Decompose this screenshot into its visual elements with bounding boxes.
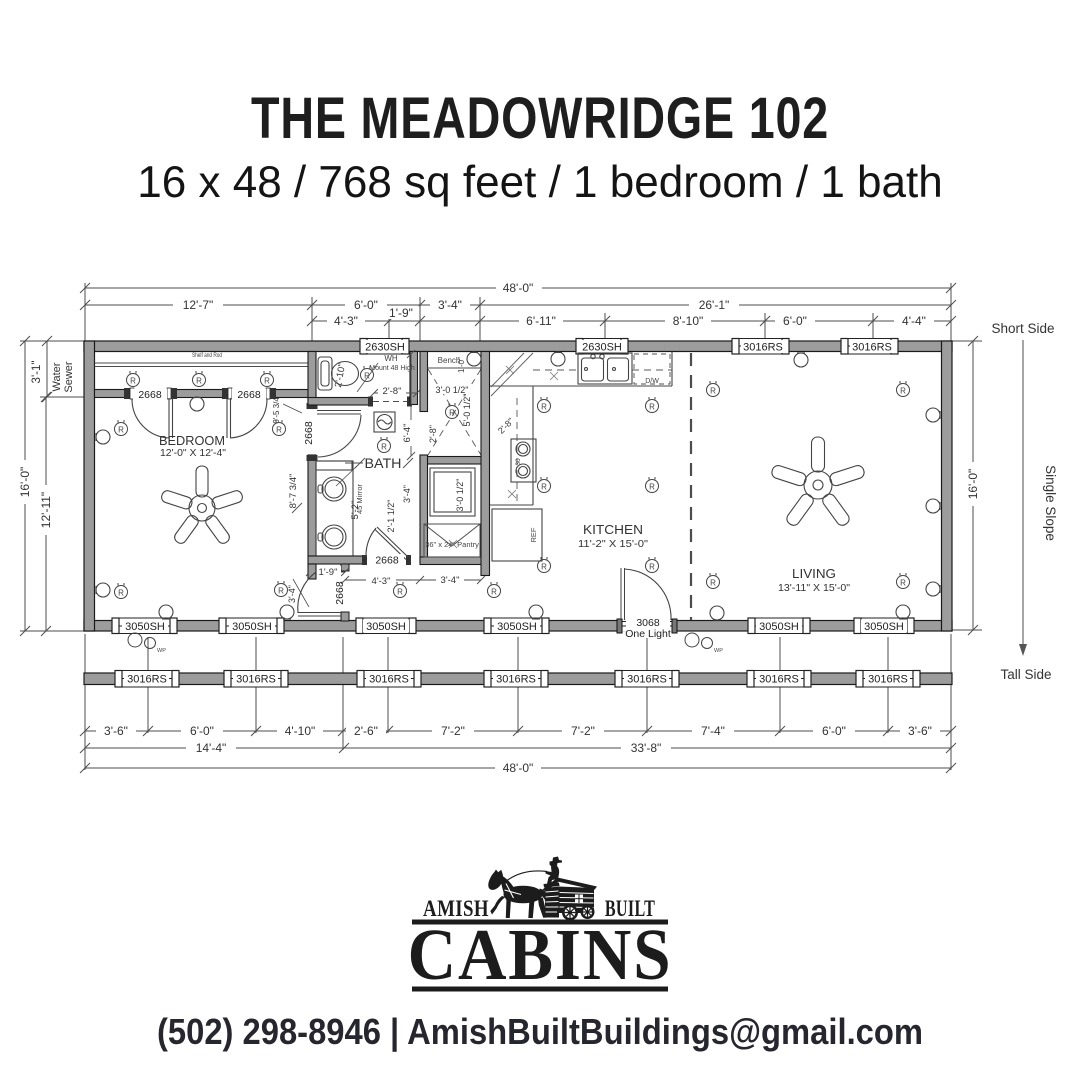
svg-text:REF: REF [529, 527, 538, 542]
svg-text:6'-0": 6'-0" [354, 298, 378, 312]
svg-text:R: R [900, 387, 906, 396]
svg-text:One Light: One Light [625, 628, 671, 640]
svg-text:D/W: D/W [645, 378, 659, 385]
svg-text:BEDROOM: BEDROOM [159, 433, 225, 448]
svg-text:R: R [649, 403, 655, 412]
svg-text:3016RS: 3016RS [852, 342, 892, 354]
svg-text:Water: Water [51, 362, 63, 391]
svg-text:0'-5 3/4": 0'-5 3/4" [272, 394, 281, 423]
svg-text:2'-6": 2'-6" [354, 724, 378, 738]
svg-text:3016RS: 3016RS [743, 342, 783, 354]
svg-text:7'-2": 7'-2" [571, 724, 595, 738]
svg-text:8'-7 3/4": 8'-7 3/4" [288, 474, 299, 509]
svg-text:BATH: BATH [365, 456, 402, 471]
svg-text:WP: WP [714, 648, 723, 654]
svg-text:4'-4": 4'-4" [902, 314, 926, 328]
svg-text:1'-0": 1'-0" [457, 357, 466, 373]
svg-text:30: 30 [515, 458, 522, 466]
svg-text:7'-4": 7'-4" [701, 724, 725, 738]
svg-text:R: R [381, 443, 387, 452]
svg-text:R: R [130, 377, 136, 386]
svg-text:THE MEADOWRIDGE 102: THE MEADOWRIDGE 102 [251, 86, 829, 151]
svg-text:2668: 2668 [303, 421, 315, 445]
svg-text:WH: WH [384, 354, 398, 363]
svg-text:14'-4": 14'-4" [196, 741, 227, 755]
svg-text:3016RS: 3016RS [369, 674, 409, 686]
svg-text:3016RS: 3016RS [496, 674, 536, 686]
svg-text:2'-8": 2'-8" [428, 425, 438, 443]
svg-text:3'-1": 3'-1" [31, 361, 43, 384]
svg-text:3'-4": 3'-4" [402, 485, 412, 503]
svg-text:26'-1": 26'-1" [699, 298, 730, 312]
svg-text:6'-0": 6'-0" [783, 314, 807, 328]
svg-text:KITCHEN: KITCHEN [583, 522, 643, 537]
svg-text:6'-4": 6'-4" [402, 424, 413, 443]
svg-text:3016RS: 3016RS [627, 674, 667, 686]
svg-text:3'-4": 3'-4" [438, 298, 462, 312]
svg-text:R: R [278, 587, 284, 596]
svg-text:R: R [449, 409, 455, 418]
svg-text:(502) 298-8946 | AmishBuiltBui: (502) 298-8946 | AmishBuiltBuildings@gma… [157, 1013, 923, 1053]
svg-text:R: R [541, 563, 547, 572]
svg-text:3050SH: 3050SH [366, 621, 406, 633]
svg-text:2668: 2668 [334, 581, 346, 605]
svg-text:3016RS: 3016RS [127, 674, 167, 686]
svg-text:13'-11" X 15'-0": 13'-11" X 15'-0" [778, 582, 850, 594]
svg-text:R: R [649, 563, 655, 572]
svg-text:3050SH: 3050SH [759, 621, 799, 633]
svg-text:2668: 2668 [375, 555, 399, 567]
svg-text:3'-0 1/2": 3'-0 1/2" [455, 479, 465, 512]
svg-text:R: R [649, 483, 655, 492]
svg-text:R: R [264, 377, 270, 386]
svg-text:2'-8": 2'-8" [383, 386, 402, 397]
svg-text:6'-0": 6'-0" [190, 724, 214, 738]
svg-text:3'-0 1/2": 3'-0 1/2" [436, 385, 469, 395]
svg-text:3016RS: 3016RS [868, 674, 908, 686]
svg-text:5'-2": 5'-2" [350, 501, 361, 520]
svg-text:1'-9": 1'-9" [319, 567, 338, 578]
svg-text:3'-4": 3'-4" [441, 575, 460, 586]
svg-text:Sewer: Sewer [63, 361, 75, 393]
svg-text:R: R [710, 387, 716, 396]
svg-text:3016RS: 3016RS [759, 674, 799, 686]
svg-text:5'-0 1/2": 5'-0 1/2" [462, 394, 472, 427]
svg-text:12'-0" X 12'-4": 12'-0" X 12'-4" [160, 447, 226, 459]
svg-text:R: R [364, 372, 370, 381]
svg-text:R: R [196, 377, 202, 386]
svg-text:1'-9": 1'-9" [389, 306, 413, 320]
svg-text:12'-11": 12'-11" [39, 492, 53, 528]
svg-text:R: R [397, 588, 403, 597]
svg-text:3050SH: 3050SH [232, 621, 272, 633]
svg-text:R: R [541, 403, 547, 412]
svg-text:16'-0": 16'-0" [18, 467, 32, 498]
svg-text:3'-6": 3'-6" [104, 724, 128, 738]
svg-text:3050SH: 3050SH [497, 621, 537, 633]
svg-text:3016RS: 3016RS [236, 674, 276, 686]
svg-text:2668: 2668 [237, 389, 261, 401]
svg-text:4'-3": 4'-3" [334, 314, 358, 328]
svg-text:3050SH: 3050SH [125, 621, 165, 633]
svg-text:16 x 48 / 768 sq feet / 1 bedr: 16 x 48 / 768 sq feet / 1 bedroom / 1 ba… [137, 158, 943, 207]
svg-text:2'-1 1/2": 2'-1 1/2" [386, 500, 396, 533]
svg-text:11'-2" X 15'-0": 11'-2" X 15'-0" [578, 538, 648, 550]
svg-text:7'-2": 7'-2" [441, 724, 465, 738]
svg-text:Shelf and Rod: Shelf and Rod [192, 352, 222, 359]
svg-text:Tall Side: Tall Side [1000, 667, 1051, 682]
svg-text:R: R [541, 483, 547, 492]
svg-text:48'-0": 48'-0" [503, 761, 534, 775]
svg-text:6'-0": 6'-0" [822, 724, 846, 738]
svg-text:R: R [491, 588, 497, 597]
svg-text:R: R [118, 589, 124, 598]
svg-text:48'-0": 48'-0" [503, 281, 534, 295]
svg-text:4'-3": 4'-3" [372, 576, 391, 587]
svg-text:CABINS: CABINS [408, 914, 673, 995]
svg-text:33'-8": 33'-8" [631, 741, 662, 755]
svg-text:3050SH: 3050SH [864, 621, 904, 633]
svg-text:12'-7": 12'-7" [183, 298, 214, 312]
svg-text:2630SH: 2630SH [582, 342, 622, 354]
svg-text:6'-11": 6'-11" [526, 314, 556, 328]
svg-text:4'-10": 4'-10" [285, 724, 316, 738]
svg-text:LIVING: LIVING [792, 566, 836, 581]
svg-text:R: R [276, 426, 282, 435]
svg-text:3'-4": 3'-4" [287, 585, 297, 603]
svg-text:2630SH: 2630SH [365, 342, 405, 354]
svg-text:16'-0": 16'-0" [966, 469, 980, 500]
svg-text:Single Slope: Single Slope [1043, 465, 1058, 541]
svg-text:R: R [118, 426, 124, 435]
svg-text:WP: WP [157, 648, 166, 654]
svg-text:8'-10": 8'-10" [673, 314, 704, 328]
svg-text:2668: 2668 [138, 389, 162, 401]
svg-text:R: R [710, 579, 716, 588]
svg-text:R: R [900, 579, 906, 588]
svg-text:Short Side: Short Side [991, 321, 1054, 336]
svg-text:3'-6": 3'-6" [908, 724, 932, 738]
